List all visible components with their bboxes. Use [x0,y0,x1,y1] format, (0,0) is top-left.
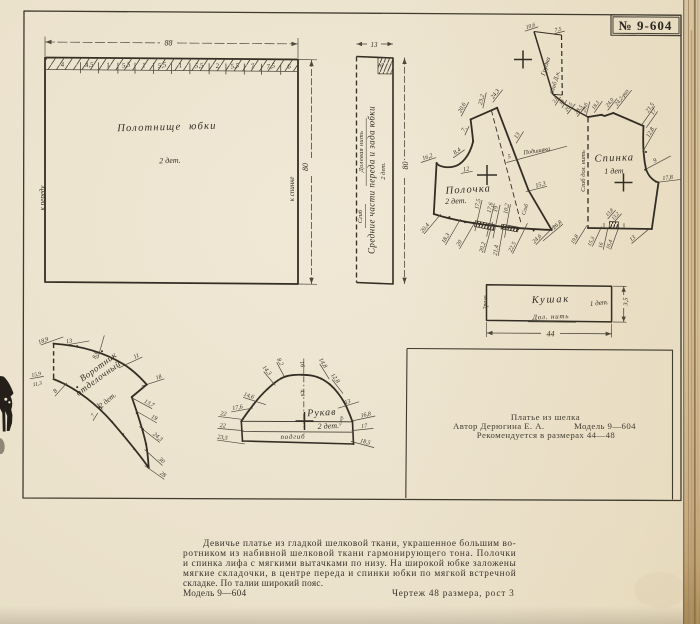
svg-text:Сгиб: Сгиб [357,209,364,223]
svg-text:80: 80 [301,163,310,171]
svg-text:и спинка лифа с мягкими вытачк: и спинка лифа с мягкими вытачками по низ… [183,558,517,569]
svg-text:2 дет.: 2 дет. [380,162,387,180]
svg-text:22: 22 [220,423,227,430]
svg-text:2 дет.: 2 дет. [317,421,339,431]
svg-text:Дол. нить: Дол. нить [531,312,569,321]
svg-text:13: 13 [66,338,73,345]
svg-text:19: 19 [493,206,500,213]
svg-text:Кушак: Кушак [531,294,571,306]
svg-text:Сгиб дол. нить: Сгиб дол. нить [580,150,587,192]
svg-text:6: 6 [380,64,383,70]
svg-text:1 дет: 1 дет [604,166,624,176]
svg-text:16: 16 [298,361,305,368]
svg-text:Модель 9—604: Модель 9—604 [183,589,246,599]
svg-text:Чертеж 48 размера, рост 3: Чертеж 48 размера, рост 3 [392,589,514,599]
svg-text:Рекомендуется в размерах 44—48: Рекомендуется в размерах 44—48 [477,430,616,440]
svg-text:13: 13 [371,41,379,49]
svg-text:2 дет.: 2 дет. [445,196,467,206]
svg-text:22: 22 [220,411,227,418]
svg-text:мягкие складочки, в центре пер: мягкие складочки, в центре переда и спин… [183,568,516,579]
svg-text:№ 9-604: № 9-604 [619,18,673,33]
svg-text:5,5: 5,5 [122,62,132,70]
svg-text:к переду: к переду [39,185,47,211]
svg-text:Долевая нить: Долевая нить [358,131,365,174]
svg-text:2раза: 2раза [483,295,489,309]
svg-text:17,8: 17,8 [662,175,673,182]
svg-text:44: 44 [547,329,555,338]
svg-text:подгиб: подгиб [280,433,305,441]
svg-text:4,5: 4,5 [85,61,95,69]
svg-text:5,5: 5,5 [195,62,205,70]
svg-text:12: 12 [463,166,470,173]
svg-text:ротником из набивной шелковой: ротником из набивной шелковой ткани гарм… [183,548,516,559]
svg-text:3,5: 3,5 [622,297,629,307]
svg-text:2 дет.: 2 дет. [159,156,181,166]
svg-text:Средние части переда и зада юб: Средние части переда и зада юбки [366,106,376,254]
svg-text:5,5: 5,5 [157,62,167,70]
svg-text:5,5: 5,5 [230,62,240,70]
svg-text:к спинке: к спинке [288,177,296,202]
svg-text:складке. По талии широкий пояс: складке. По талии широкий пояс. [183,578,323,589]
svg-text:Девичье платье из гладкой шелк: Девичье платье из гладкой шелковой ткани… [203,538,516,549]
svg-text:80: 80 [401,162,410,170]
svg-text:Спинка: Спинка [594,152,634,164]
svg-text:Рукав: Рукав [306,407,337,420]
svg-text:4,4: 4,4 [299,389,307,397]
svg-text:88: 88 [165,38,173,47]
svg-text:7,5: 7,5 [266,63,276,71]
